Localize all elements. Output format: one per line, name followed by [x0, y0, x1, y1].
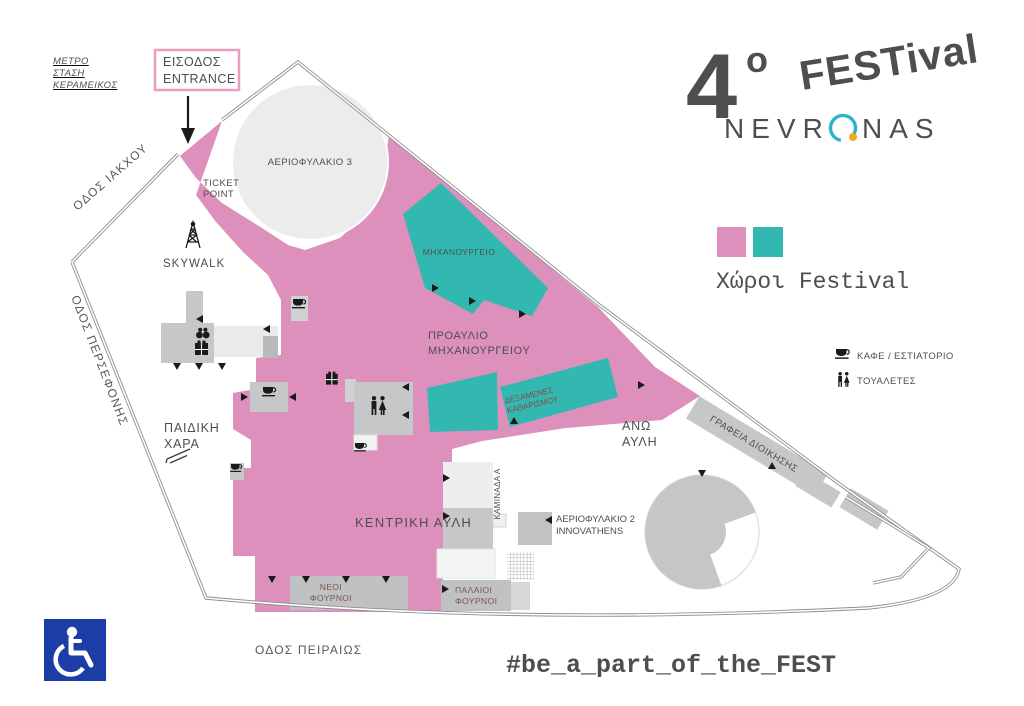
entrance-callout: ΕΙΣΟΔΟΣ ENTRANCE [155, 50, 239, 144]
logo-o-arc-icon [829, 114, 858, 143]
legend-title: Χώροι Festival [716, 269, 909, 295]
old-ovens-label-1: ΠΑΛΑΙΟΙ [455, 585, 492, 595]
logo-brand-right: NAS [862, 113, 941, 144]
svg-text:ΣΤΑΣΗ: ΣΤΑΣΗ [52, 68, 85, 79]
street-iakchou: ΟΔΟΣ ΙΑΚΧΟΥ [70, 141, 150, 214]
cafe-icon [835, 349, 849, 359]
ticket-point-label-2: POINT [203, 189, 234, 200]
gasholder2-label-1: ΑΕΡΙΟΦΥΛΑΚΙΟ 2 [556, 514, 635, 525]
gasholder3-label: ΑΕΡΙΟΦΥΛΑΚΙΟ 3 [268, 157, 353, 168]
slide-icon [166, 449, 190, 463]
svg-text:ΟΔΟΣ ΙΑΚΧΟΥ: ΟΔΟΣ ΙΑΚΧΟΥ [70, 141, 150, 214]
entrance-label-greek: ΕΙΣΟΔΟΣ [163, 55, 221, 69]
svg-text:ΚΑΜΙΝΑΔΑ Α: ΚΑΜΙΝΑΔΑ Α [493, 468, 502, 519]
festival-map-poster: ΑΕΡΙΟΦΥΛΑΚΙΟ 3 ΜΗΧΑΝΟΥΡΓΕΙΟ ΠΡΟΑΥΛΙΟ ΜΗΧ… [0, 0, 1024, 706]
playground-label-1: ΠΑΙΔΙΚΗ [164, 421, 220, 435]
legend-swatch-teal [753, 227, 783, 257]
legend-cafe-label: ΚΑΦΕ / ΕΣΤΙΑΤΟΡΙΟ [857, 351, 954, 362]
logo-ordinal: o [746, 39, 768, 80]
new-ovens-label-2: ΦΟΥΡΝΟΙ [310, 593, 352, 603]
entrance-label-english: ENTRANCE [163, 72, 236, 86]
festival-logo: 4 o FESTival NEVR NAS [686, 25, 982, 144]
svg-text:ΜΕΤΡΟ: ΜΕΤΡΟ [53, 56, 89, 67]
old-ovens-label-2: ΦΟΥΡΝΟΙ [455, 596, 497, 606]
skywalk-label: SKYWALK [163, 258, 225, 270]
gasholder2-label-2: INNOVATHENS [556, 526, 623, 537]
machine-shop-label: ΜΗΧΑΝΟΥΡΓΕΙΟ [423, 247, 496, 257]
central-courtyard-label: ΚΕΝΤΡΙΚΗ ΑΥΛΗ [355, 515, 472, 530]
forecourt-label-1: ΠΡΟΑΥΛΙΟ [428, 330, 488, 342]
hashtag: #be_a_part_of_the_FEST [506, 651, 836, 680]
new-ovens-label-1: ΝΕΟΙ [320, 582, 342, 592]
hatched-area [507, 552, 534, 580]
skywalk-tower-icon [186, 222, 200, 248]
entrance-marker [195, 363, 203, 370]
svg-text:ΚΕΡΑΜΕΙΚΟΣ: ΚΕΡΑΜΕΙΚΟΣ [53, 80, 118, 91]
legend: Χώροι Festival ΚΑΦΕ / ΕΣΤΙΑΤΟΡΙΟ ΤΟΥΑΛΕΤ… [716, 227, 954, 387]
chimney-a-label: ΚΑΜΙΝΑΔΑ Α [493, 468, 502, 519]
entrance-marker [218, 363, 226, 370]
playground-label-2: ΧΑΡΑ [164, 437, 200, 451]
svg-text:ΟΔΟΣ ΠΕΡΣΕΦΟΝΗΣ: ΟΔΟΣ ΠΕΡΣΕΦΟΝΗΣ [68, 293, 131, 427]
legend-swatch-pink [717, 227, 746, 257]
toilets-icon [838, 372, 849, 387]
wheelchair-icon [44, 619, 106, 681]
venue-map: ΑΕΡΙΟΦΥΛΑΚΙΟ 3 ΜΗΧΑΝΟΥΡΓΕΙΟ ΠΡΟΑΥΛΙΟ ΜΗΧ… [0, 0, 1024, 706]
metro-note: ΜΕΤΡΟ ΣΤΑΣΗ ΚΕΡΑΜΕΙΚΟΣ [52, 56, 118, 91]
street-persefonis: ΟΔΟΣ ΠΕΡΣΕΦΟΝΗΣ [68, 293, 131, 427]
logo-festival: FESTival [796, 25, 981, 99]
ticket-point-label-1: TICKET [203, 178, 239, 189]
street-peiraios: ΟΔΟΣ ΠΕΙΡΑΙΩΣ [255, 643, 362, 657]
upper-courtyard-label-2: ΑΥΛΗ [622, 435, 657, 449]
logo-brand-left: NEVR [724, 113, 830, 144]
entrance-arrow-icon [181, 96, 195, 144]
entrance-marker [173, 363, 181, 370]
upper-courtyard-label-1: ΑΝΩ [622, 419, 651, 433]
forecourt-label-2: ΜΗΧΑΝΟΥΡΓΕΙΟΥ [428, 345, 530, 357]
legend-toilets-label: ΤΟΥΑΛΕΤΕΣ [857, 376, 916, 387]
gasholder2-circle [645, 475, 759, 589]
